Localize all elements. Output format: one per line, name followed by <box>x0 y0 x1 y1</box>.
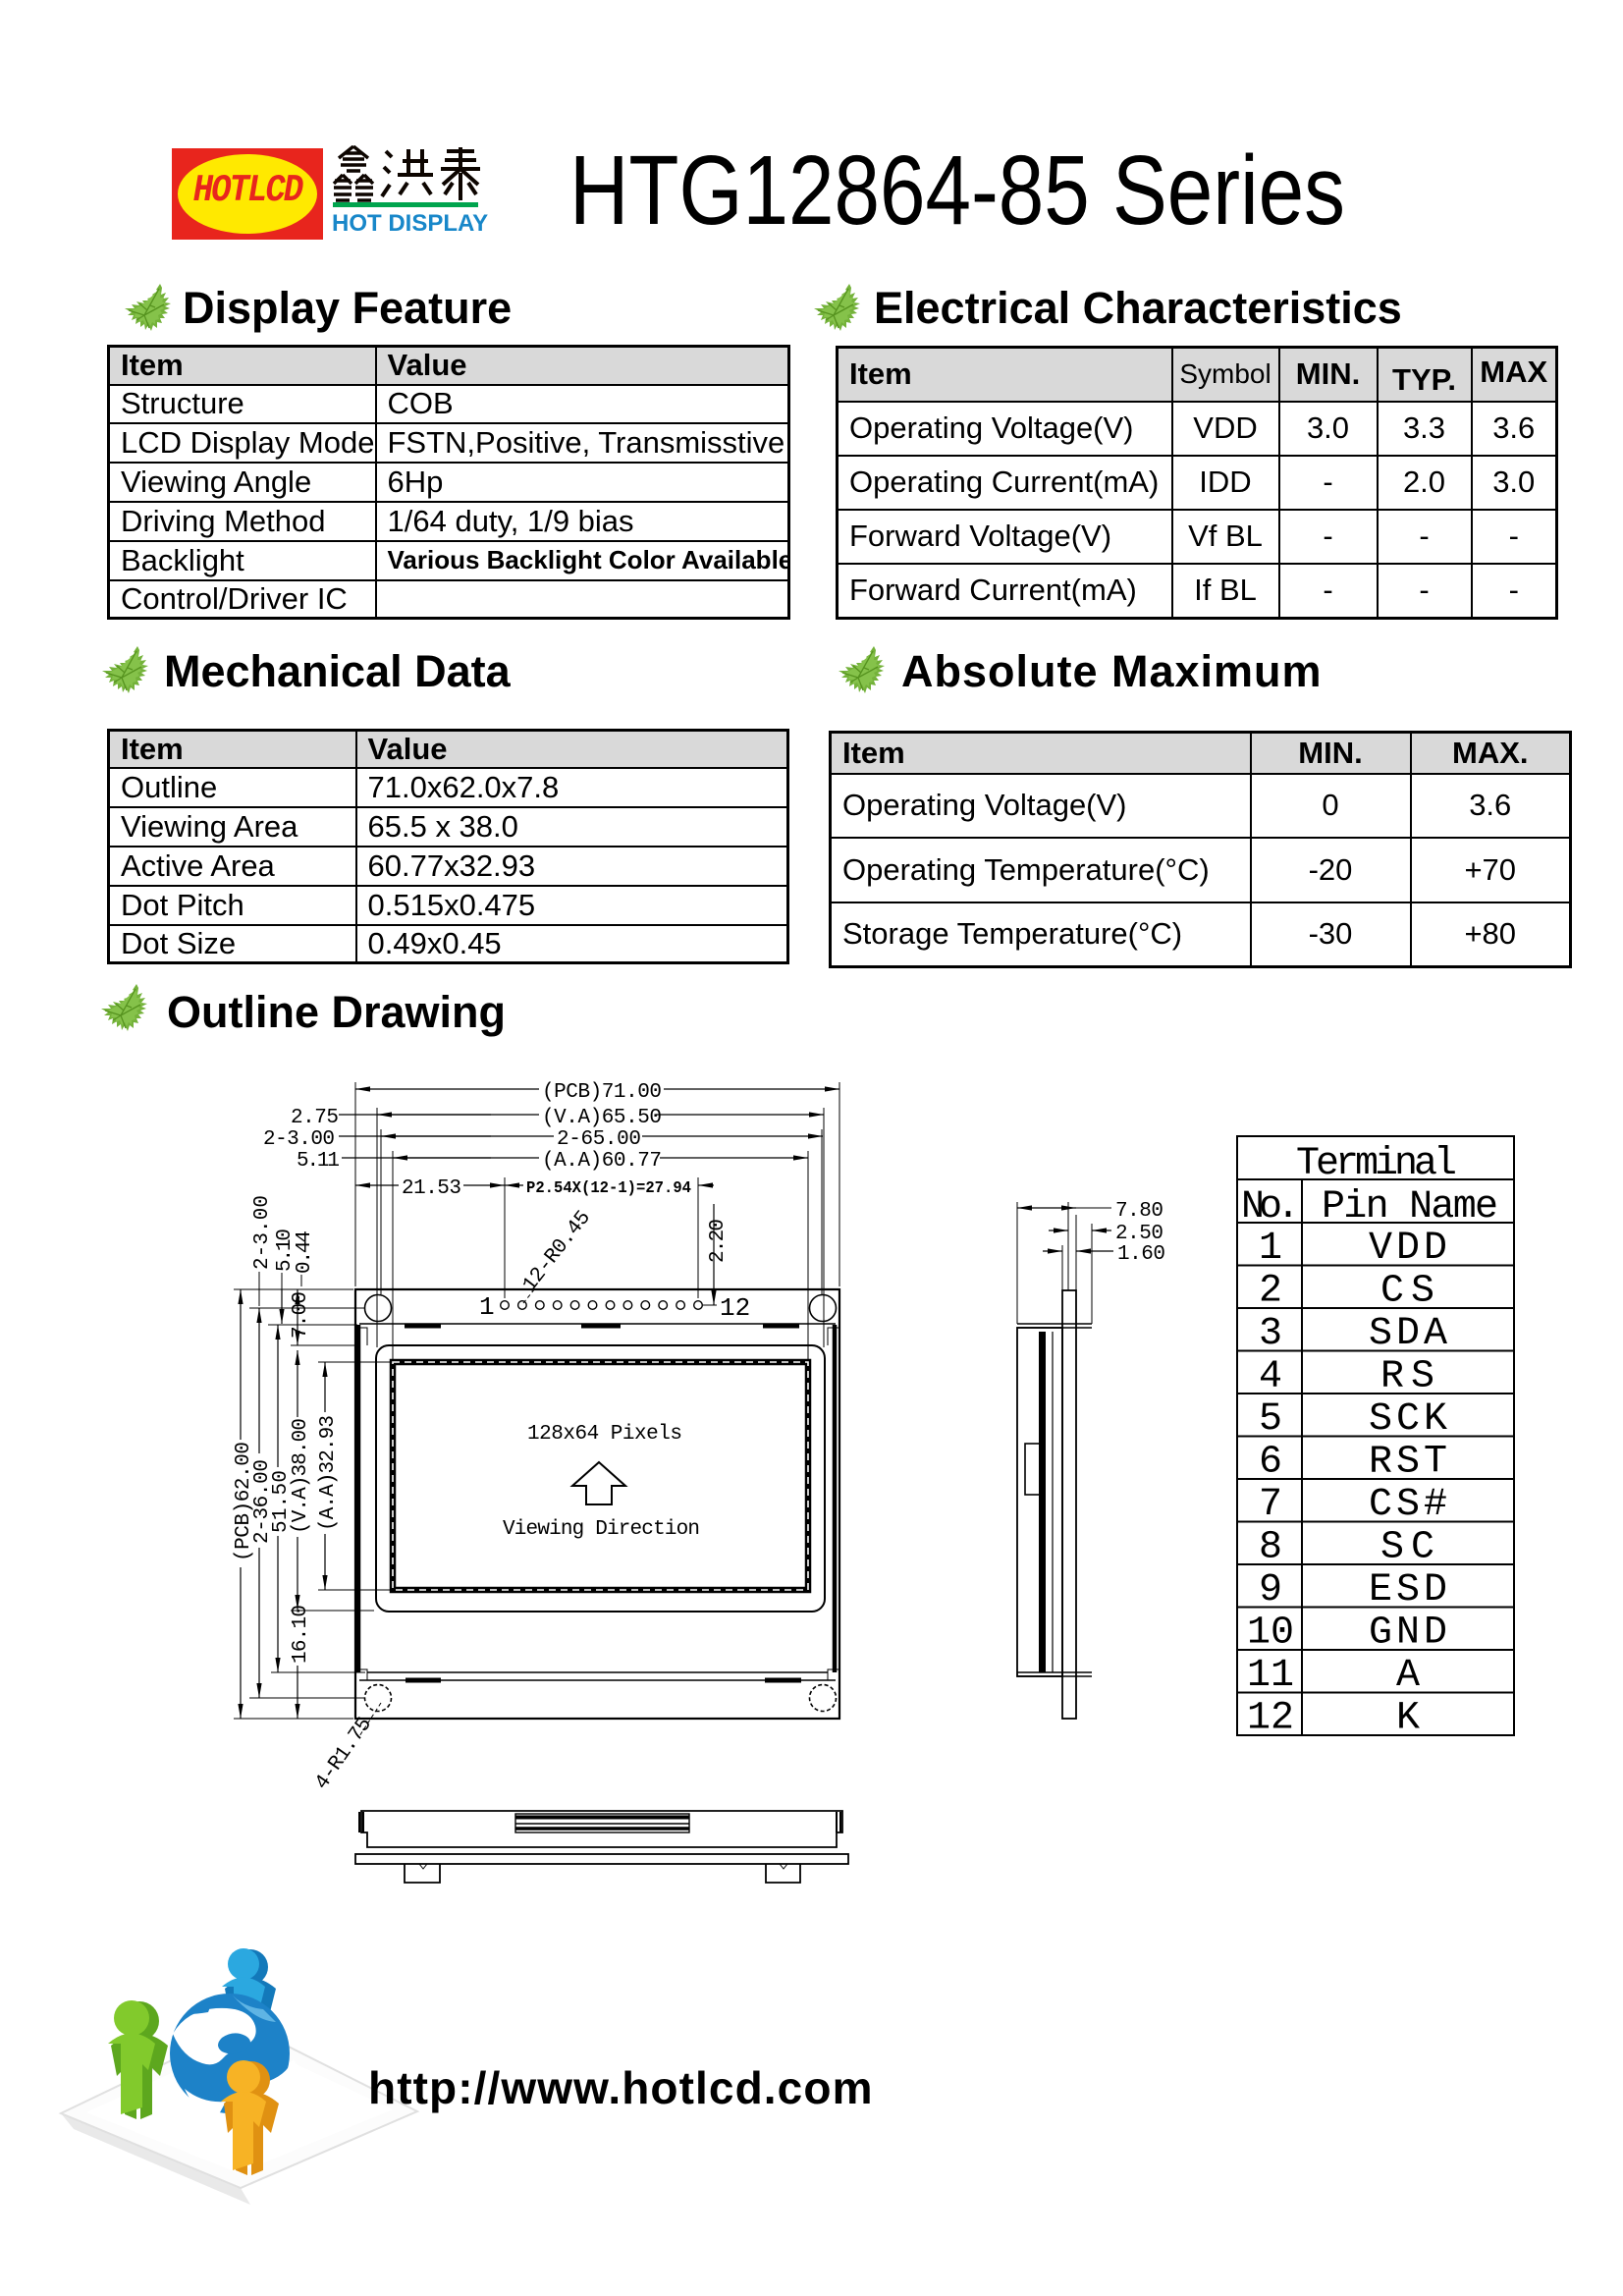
svg-text:RST: RST <box>1369 1441 1447 1485</box>
svg-text:16.10: 16.10 <box>290 1605 312 1664</box>
svg-text:128x64 Pixels: 128x64 Pixels <box>527 1423 682 1446</box>
svg-text:(A.A)60.77: (A.A)60.77 <box>542 1150 662 1173</box>
svg-text:K: K <box>1396 1697 1420 1741</box>
svg-text:7: 7 <box>1259 1483 1282 1527</box>
svg-text:2-3.00: 2-3.00 <box>263 1128 335 1151</box>
svg-text:4: 4 <box>1259 1355 1282 1399</box>
svg-text:0.44: 0.44 <box>294 1230 316 1274</box>
svg-text:2.50: 2.50 <box>1115 1223 1163 1245</box>
svg-text:(PCB)71.00: (PCB)71.00 <box>542 1081 662 1104</box>
svg-text:Terminal: Terminal <box>1296 1142 1457 1186</box>
svg-text:RS: RS <box>1380 1355 1434 1399</box>
svg-text:4-R1.75: 4-R1.75 <box>311 1714 377 1794</box>
svg-text:12: 12 <box>1247 1697 1294 1741</box>
svg-text:CS#: CS# <box>1369 1483 1447 1527</box>
svg-text:7.80: 7.80 <box>1115 1200 1163 1223</box>
svg-text:2-3.00: 2-3.00 <box>251 1195 274 1270</box>
svg-text:5: 5 <box>1259 1397 1282 1442</box>
svg-text:SCK: SCK <box>1369 1397 1447 1442</box>
svg-text:No.: No. <box>1241 1185 1300 1230</box>
svg-text:A: A <box>1396 1654 1420 1698</box>
svg-text:2.20: 2.20 <box>707 1219 730 1263</box>
svg-text:(A.A)32.93: (A.A)32.93 <box>317 1415 340 1531</box>
svg-text:21.53: 21.53 <box>402 1177 461 1200</box>
svg-text:1.60: 1.60 <box>1117 1243 1165 1266</box>
svg-text:1: 1 <box>479 1292 495 1322</box>
svg-text:11: 11 <box>1247 1654 1294 1698</box>
svg-text:VDD: VDD <box>1369 1227 1447 1271</box>
svg-text:10: 10 <box>1247 1612 1294 1656</box>
svg-text:SC: SC <box>1380 1526 1434 1570</box>
svg-text:12: 12 <box>720 1293 750 1323</box>
svg-text:SDA: SDA <box>1369 1312 1447 1356</box>
svg-text:P2.54X(12-1)=27.94: P2.54X(12-1)=27.94 <box>526 1179 691 1198</box>
svg-text:12-R0.45: 12-R0.45 <box>518 1207 595 1296</box>
svg-text:6: 6 <box>1259 1441 1282 1485</box>
svg-text:GND: GND <box>1369 1612 1447 1656</box>
svg-text:1: 1 <box>1259 1227 1282 1271</box>
svg-text:8: 8 <box>1259 1526 1282 1570</box>
svg-text:(V.A)65.50: (V.A)65.50 <box>542 1107 662 1129</box>
svg-text:CS: CS <box>1380 1270 1434 1314</box>
svg-text:7.00: 7.00 <box>290 1291 312 1339</box>
svg-text:Viewing Direction: Viewing Direction <box>503 1518 700 1541</box>
svg-text:2-65.00: 2-65.00 <box>557 1128 641 1151</box>
svg-text:5.11: 5.11 <box>297 1150 340 1173</box>
svg-text:ESD: ESD <box>1369 1568 1447 1613</box>
svg-text:2.75: 2.75 <box>291 1107 339 1129</box>
svg-text:2: 2 <box>1259 1270 1282 1314</box>
svg-text:3: 3 <box>1259 1312 1282 1356</box>
svg-text:9: 9 <box>1259 1568 1282 1613</box>
svg-text:Pin Name: Pin Name <box>1322 1185 1498 1230</box>
svg-text:(V.A)38.00: (V.A)38.00 <box>290 1418 312 1534</box>
